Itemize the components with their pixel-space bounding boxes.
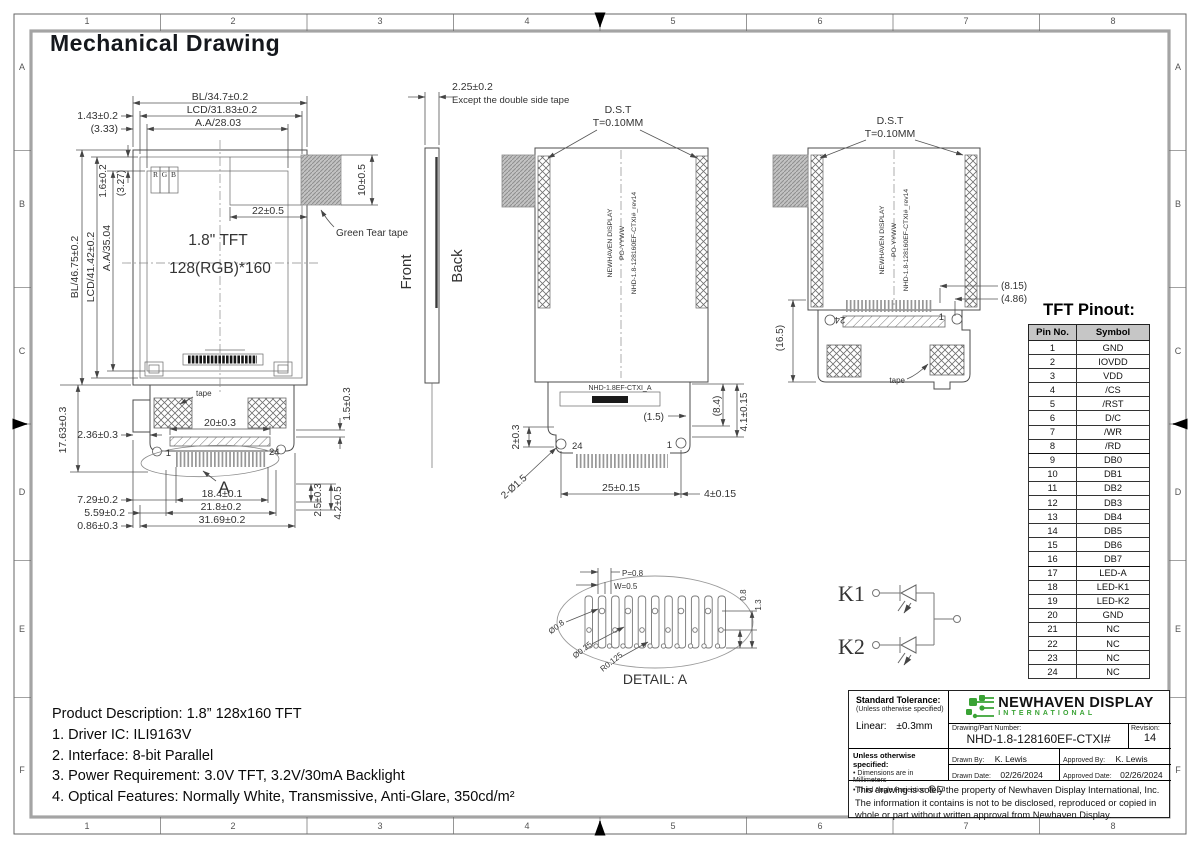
dim-fpc-offset: 2.36±0.3 (77, 429, 118, 441)
pin-no: 11 (1029, 481, 1077, 495)
dim-4-1: 4.1±0.15 (739, 392, 750, 431)
pin-symbol: NC (1077, 665, 1150, 679)
dim-left-offset: 1.43±0.2 (77, 110, 118, 122)
pin-no: 3 (1029, 369, 1077, 383)
pin-no: 21 (1029, 622, 1077, 636)
led-circuit: K1 K2 (838, 581, 961, 665)
table-row: 23NC (1029, 651, 1150, 665)
pin-symbol: NC (1077, 636, 1150, 650)
back2-dst-thickness: T=0.10MM (865, 128, 915, 140)
table-row: 2IOVDD (1029, 355, 1150, 369)
company-name: NEWHAVEN DISPLAY (998, 696, 1153, 710)
dim-conn-right: 4±0.15 (704, 488, 736, 500)
dim-tape-width: 22±0.5 (252, 205, 284, 217)
grid-row-label: C (1168, 346, 1188, 356)
back-view-folded: NEWHAVEN DISPLAY PO-YYWW NHD-1.8-128160E… (773, 115, 1027, 389)
table-row: 4/CS (1029, 383, 1150, 397)
std-tolerance-sub: (Unless otherwise specified) (849, 705, 948, 713)
grid-row-label: E (12, 624, 32, 634)
dim-8-4-ref: (8.4) (712, 396, 723, 417)
pin-no: 5 (1029, 397, 1077, 411)
pin-symbol: DB1 (1077, 467, 1150, 481)
dim-bl-width: BL/34.7±0.2 (192, 91, 249, 103)
dim-5-59: 5.59±0.2 (84, 507, 125, 519)
table-row: 9DB0 (1029, 453, 1150, 467)
table-row: 21NC (1029, 622, 1150, 636)
pin-no: 15 (1029, 538, 1077, 552)
pin-no: 7 (1029, 425, 1077, 439)
approved-date-label: Approved Date: (1060, 773, 1112, 780)
table-row: 16DB7 (1029, 552, 1150, 566)
grid-row-label: B (1168, 199, 1188, 209)
part-number-value: NHD-1.8-128160EF-CTXI# (949, 732, 1128, 746)
led-k1-label: K1 (838, 581, 865, 606)
grid-row-label: C (12, 346, 32, 356)
pin-symbol: VDD (1077, 369, 1150, 383)
pin-symbol: IOVDD (1077, 355, 1150, 369)
uos-title: Unless otherwise specified: (849, 749, 948, 769)
grid-col-label: 5 (663, 821, 683, 831)
table-row: 15DB6 (1029, 538, 1150, 552)
product-line: Product Description: 1.8” 128x160 TFT (52, 704, 515, 725)
std-tolerance-title: Standard Tolerance: (849, 691, 948, 705)
grid-col-label: 3 (370, 821, 390, 831)
drawn-by-label: Drawn By: (949, 757, 984, 764)
drawn-by-cell: Drawn By: K. Lewis (949, 749, 1060, 765)
pin-no: 6 (1029, 411, 1077, 425)
pin-no: 8 (1029, 439, 1077, 453)
grid-row-label: B (12, 199, 32, 209)
dim-21-8: 21.8±0.2 (201, 501, 242, 513)
grid-col-label: 8 (1103, 16, 1123, 26)
table-row: 24NC (1029, 665, 1150, 679)
part-number-cell: Drawing/Part Number: NHD-1.8-128160EF-CT… (949, 724, 1129, 749)
front-view: R G B 1.8" TFT 128(RGB)*160 1 24 tape A (122, 140, 341, 497)
back-pin1-label: 1 (667, 440, 672, 451)
back2-pin1-label: 1 (939, 312, 944, 323)
drawn-date-value: 02/26/2024 (995, 770, 1043, 780)
product-description: Product Description: 1.8” 128x160 TFT 1.… (52, 704, 515, 808)
pin-no: 9 (1029, 453, 1077, 467)
front-pin24-label: 24 (269, 447, 280, 458)
pin-no: 18 (1029, 580, 1077, 594)
pinout-panel: TFT Pinout: Pin No. Symbol 1GND 2IOVDD 3… (1028, 301, 1150, 679)
grid-col-label: 4 (517, 16, 537, 26)
dim-hole-edge: 2±0.3 (511, 424, 522, 449)
grid-col-label: 2 (223, 16, 243, 26)
legal-line: whole or part without written approval f… (855, 809, 1165, 822)
pin-symbol: /WR (1077, 425, 1150, 439)
back2-dst-label: D.S.T (877, 115, 904, 127)
grid-col-label: 5 (663, 16, 683, 26)
dim-aa-width: A.A/28.03 (195, 117, 241, 129)
pin-symbol: DB5 (1077, 524, 1150, 538)
company-subtitle: INTERNATIONAL (998, 710, 1153, 718)
pin-symbol: GND (1077, 341, 1150, 355)
back2-pin24-label: 24 (835, 314, 846, 325)
pin-symbol: LED-K2 (1077, 594, 1150, 608)
pin-symbol: DB6 (1077, 538, 1150, 552)
detail-dim-13: 1.3 (754, 599, 763, 611)
display-size-label: 1.8" TFT (188, 232, 248, 249)
back-marking-line2: PO-YYWW (619, 225, 626, 260)
led-k2-label: K2 (838, 634, 865, 659)
standard-tolerance-cell: Standard Tolerance: (Unless otherwise sp… (849, 691, 949, 749)
pin-no: 20 (1029, 608, 1077, 622)
pin-symbol: LED-A (1077, 566, 1150, 580)
dim-16-5-ref: (16.5) (775, 325, 786, 351)
dim-aa-height: A.A/35.04 (101, 225, 113, 271)
product-line: 1. Driver IC: ILI9163V (52, 725, 515, 746)
page-title: Mechanical Drawing (50, 30, 280, 57)
pin-symbol: /CS (1077, 383, 1150, 397)
dim-right-gap: 1.5±0.3 (342, 387, 353, 421)
back2-marking-line1: NEWHAVEN DISPLAY (879, 205, 886, 274)
pin-no: 12 (1029, 496, 1077, 510)
pin-symbol: D/C (1077, 411, 1150, 425)
pin-no: 13 (1029, 510, 1077, 524)
approved-date-value: 02/26/2024 (1116, 770, 1163, 780)
dim-0-86: 0.86±0.3 (77, 520, 118, 532)
table-row: 11DB2 (1029, 481, 1150, 495)
pin-no: 23 (1029, 651, 1077, 665)
table-row: 8/RD (1029, 439, 1150, 453)
detail-dim-pitch: P=0.8 (622, 569, 644, 578)
pin-no: 17 (1029, 566, 1077, 580)
pin-no: 2 (1029, 355, 1077, 369)
grid-col-label: 1 (77, 821, 97, 831)
back-dst-label: D.S.T (605, 104, 632, 116)
dim-lcd-height: LCD/41.42±0.2 (85, 232, 97, 303)
dim-stiffener-width: 20±0.3 (204, 417, 236, 429)
rgb-r-label: R (153, 170, 158, 179)
pin-symbol: DB3 (1077, 496, 1150, 510)
rgb-g-label: G (162, 170, 168, 179)
detail-a-view: P=0.8 W=0.5 0.8 1.3 Ø0.8 Ø0.25 R0.125 DE… (547, 568, 763, 687)
table-row: 14DB5 (1029, 524, 1150, 538)
grid-row-label: F (12, 765, 32, 775)
table-row: 13DB4 (1029, 510, 1150, 524)
dim-top-gap-ref: (3.27) (116, 170, 127, 196)
back-model-label: NHD-1.8EF-CTXI_A (588, 385, 651, 392)
back-pin24-label: 24 (572, 441, 583, 452)
grid-col-label: 1 (77, 16, 97, 26)
table-row: 1GND (1029, 341, 1150, 355)
pin-no: 14 (1029, 524, 1077, 538)
grid-row-label: A (1168, 62, 1188, 72)
pin-symbol: DB2 (1077, 481, 1150, 495)
back-marking-line3: NHD-1.8-128160EF-CTXI#_rev14 (631, 192, 638, 295)
pin-no: 1 (1029, 341, 1077, 355)
product-line: 2. Interface: 8-bit Parallel (52, 746, 515, 767)
grid-row-label: A (12, 62, 32, 72)
grid-col-label: 7 (956, 821, 976, 831)
table-row: 19LED-K2 (1029, 594, 1150, 608)
pinout-header-row: Pin No. Symbol (1029, 325, 1150, 341)
rgb-b-label: B (171, 170, 176, 179)
pinout-header-symbol: Symbol (1077, 325, 1150, 341)
dim-31-69: 31.69±0.2 (199, 514, 246, 526)
drawn-date-cell: Drawn Date: 02/26/2024 (949, 765, 1060, 781)
product-line: 4. Optical Features: Normally White, Tra… (52, 787, 515, 808)
table-row: 5/RST (1029, 397, 1150, 411)
grid-row-label: D (1168, 487, 1188, 497)
pin-symbol: DB7 (1077, 552, 1150, 566)
revision-value: 14 (1129, 732, 1171, 744)
drawing-sheet: R G B 1.8" TFT 128(RGB)*160 1 24 tape A … (0, 0, 1200, 848)
grid-col-label: 8 (1103, 821, 1123, 831)
approved-by-cell: Approved By: K. Lewis (1060, 749, 1171, 765)
uos-cell: Unless otherwise specified: • Dimensions… (849, 749, 949, 781)
pinout-header-pin: Pin No. (1029, 325, 1077, 341)
dim-bl-height: BL/46.75±0.2 (69, 236, 81, 299)
back-label: Back (449, 249, 466, 283)
dim-7-29: 7.29±0.2 (77, 494, 118, 506)
legal-notice-cell: This drawing is solely the property of N… (849, 781, 1171, 819)
product-line: 3. Power Requirement: 3.0V TFT, 3.2V/30m… (52, 766, 515, 787)
grid-col-label: 7 (956, 16, 976, 26)
front-tape-label: tape (196, 389, 212, 398)
grid-col-label: 2 (223, 821, 243, 831)
detail-dim-08: 0.8 (739, 589, 748, 601)
revision-cell: Revision: 14 (1129, 724, 1171, 749)
grid-row-label: D (12, 487, 32, 497)
table-row: 22NC (1029, 636, 1150, 650)
table-row: 20GND (1029, 608, 1150, 622)
back-marking-line1: NEWHAVEN DISPLAY (607, 208, 614, 277)
front-label: Front (398, 254, 415, 290)
part-number-label: Drawing/Part Number: (949, 724, 1128, 732)
back2-tape-label: tape (889, 376, 905, 385)
grid-col-label: 3 (370, 16, 390, 26)
dim-fpc-length: 17.63±0.3 (57, 407, 69, 454)
dim-1-5-ref: (1.5) (643, 412, 664, 423)
back-view: NEWHAVEN DISPLAY PO-YYWW NHD-1.8-128160E… (499, 104, 750, 501)
detail-dim-r0125: R0.125 (599, 650, 625, 673)
dim-tape-height: 10±0.5 (356, 164, 368, 196)
revision-label: Revision: (1129, 724, 1171, 732)
approved-by-value: K. Lewis (1109, 754, 1147, 764)
dim-18-4: 18.4±0.1 (202, 488, 243, 500)
grid-col-label: 6 (810, 16, 830, 26)
grid-row-label: F (1168, 765, 1188, 775)
table-row: 12DB3 (1029, 496, 1150, 510)
dim-thickness: 2.25±0.2 (452, 81, 493, 93)
detail-dim-width: W=0.5 (614, 582, 638, 591)
dim-top-gap: 1.6±0.2 (98, 164, 109, 198)
pin-no: 10 (1029, 467, 1077, 481)
dim-4-86-ref: (4.86) (1001, 294, 1027, 305)
pin-symbol: DB4 (1077, 510, 1150, 524)
legal-line: The information it contains is not to be… (855, 797, 1165, 810)
pin-symbol: /RST (1077, 397, 1150, 411)
pin-symbol: GND (1077, 608, 1150, 622)
pin-no: 22 (1029, 636, 1077, 650)
detail-a-title: DETAIL: A (623, 671, 688, 687)
approved-by-label: Approved By: (1060, 757, 1105, 764)
pin-symbol: /RD (1077, 439, 1150, 453)
approved-date-cell: Approved Date: 02/26/2024 (1060, 765, 1171, 781)
table-row: 17LED-A (1029, 566, 1150, 580)
table-row: 18LED-K1 (1029, 580, 1150, 594)
linear-value: ±0.3mm (896, 721, 932, 732)
display-resolution-label: 128(RGB)*160 (169, 260, 271, 277)
grid-col-label: 6 (810, 821, 830, 831)
drawn-by-value: K. Lewis (989, 754, 1027, 764)
table-row: 6D/C (1029, 411, 1150, 425)
pinout-table: Pin No. Symbol 1GND 2IOVDD 3VDD 4/CS 5/R… (1028, 324, 1150, 679)
dim-2-5: 2.5±0.3 (313, 483, 324, 517)
legal-line: This drawing is solely the property of N… (855, 784, 1165, 797)
title-block: Standard Tolerance: (Unless otherwise sp… (848, 690, 1170, 818)
green-tear-tape-callout: Green Tear tape (336, 228, 409, 239)
back2-marking-line2: PO-YYWW (891, 222, 898, 257)
pin-no: 16 (1029, 552, 1077, 566)
linear-label: Linear: (856, 721, 887, 732)
newhaven-logo-icon (966, 695, 994, 719)
pin-no: 4 (1029, 383, 1077, 397)
back-dst-thickness: T=0.10MM (593, 117, 643, 129)
pin-symbol: NC (1077, 651, 1150, 665)
pin-symbol: NC (1077, 622, 1150, 636)
dim-8-15-ref: (8.15) (1001, 281, 1027, 292)
pin-symbol: DB0 (1077, 453, 1150, 467)
table-row: 3VDD (1029, 369, 1150, 383)
detail-dim-d08: Ø0.8 (547, 618, 567, 636)
dim-left-offset-ref: (3.33) (91, 123, 118, 135)
table-row: 7/WR (1029, 425, 1150, 439)
thickness-note: Except the double side tape (452, 95, 569, 106)
pinout-title: TFT Pinout: (1028, 301, 1150, 320)
table-row: 10DB1 (1029, 467, 1150, 481)
pin-symbol: LED-K1 (1077, 580, 1150, 594)
back2-marking-line3: NHD-1.8-128160EF-CTXI#_rev14 (903, 189, 910, 292)
drawn-date-label: Drawn Date: (949, 773, 991, 780)
pin-no: 19 (1029, 594, 1077, 608)
dim-lcd-width: LCD/31.83±0.2 (187, 104, 258, 116)
logo-cell: NEWHAVEN DISPLAY INTERNATIONAL (949, 691, 1171, 724)
grid-col-label: 4 (517, 821, 537, 831)
grid-row-label: E (1168, 624, 1188, 634)
dim-4-2: 4.2±0.5 (333, 486, 344, 520)
dim-conn-width: 25±0.15 (602, 482, 640, 494)
front-pin1-label: 1 (166, 448, 171, 459)
pin-no: 24 (1029, 665, 1077, 679)
